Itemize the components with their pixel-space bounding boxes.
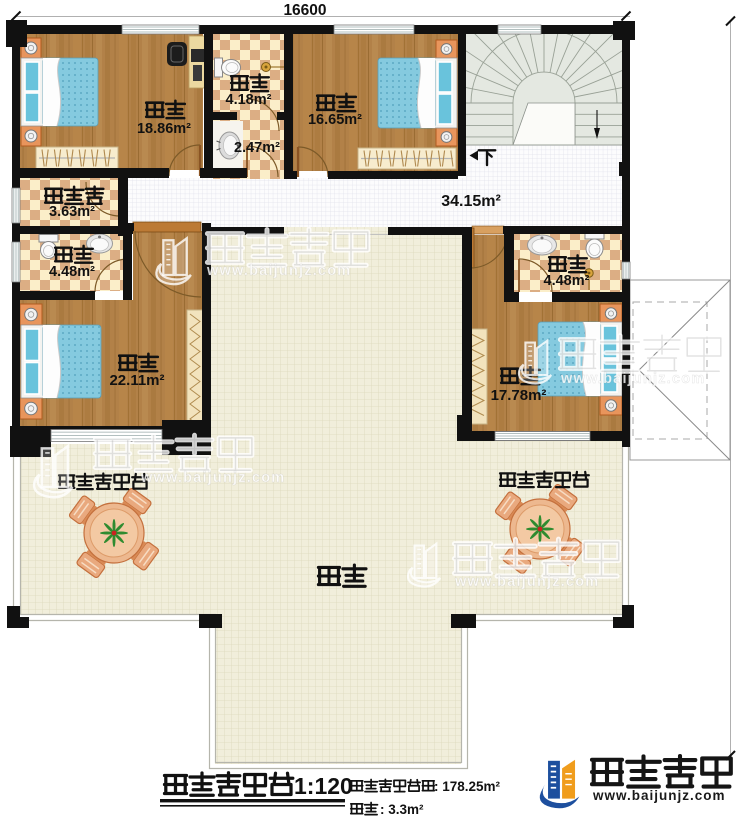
svg-text:www.baijunjz.com: www.baijunjz.com <box>560 371 705 387</box>
svg-text:2.47m²: 2.47m² <box>234 140 280 156</box>
svg-text:: 178.25m²: : 178.25m² <box>434 779 501 794</box>
svg-text:www.baijunjz.com: www.baijunjz.com <box>592 788 726 803</box>
svg-text:4.18m²: 4.18m² <box>226 92 272 108</box>
svg-text:16600: 16600 <box>283 2 326 19</box>
svg-text:17.78m²: 17.78m² <box>491 387 547 404</box>
svg-text:www.baijunjz.com: www.baijunjz.com <box>454 574 599 590</box>
svg-text:18.86m²: 18.86m² <box>137 121 191 137</box>
svg-text:: 3.3m²: : 3.3m² <box>380 802 424 817</box>
svg-text:4.48m²: 4.48m² <box>544 273 590 289</box>
svg-text:www.baijunjz.com: www.baijunjz.com <box>206 263 351 279</box>
svg-text:16.65m²: 16.65m² <box>308 112 362 128</box>
svg-text:1:120: 1:120 <box>294 773 353 799</box>
svg-text:4.48m²: 4.48m² <box>49 264 95 280</box>
svg-text:22.11m²: 22.11m² <box>109 372 164 389</box>
svg-text:3.63m²: 3.63m² <box>49 204 95 220</box>
svg-text:www.baijunjz.com: www.baijunjz.com <box>140 470 285 486</box>
svg-text:34.15m²: 34.15m² <box>441 193 501 210</box>
